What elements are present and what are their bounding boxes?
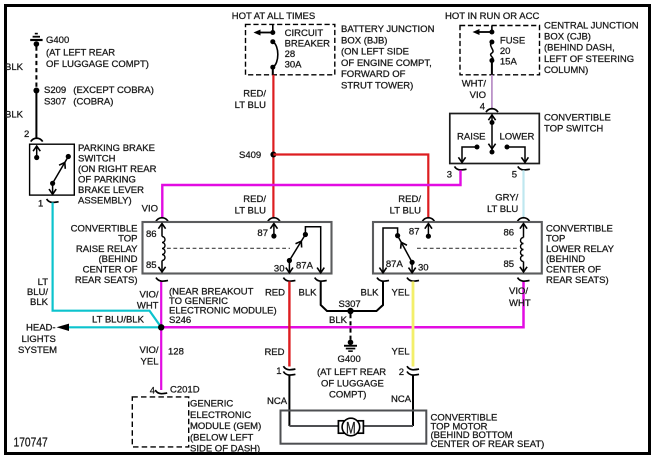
svg-text:(ON LEFT SIDE: (ON LEFT SIDE xyxy=(341,47,409,58)
svg-text:M: M xyxy=(346,418,356,436)
svg-text:86: 86 xyxy=(146,229,157,240)
svg-text:NCA: NCA xyxy=(391,394,412,405)
svg-text:HOT AT ALL TIMES: HOT AT ALL TIMES xyxy=(232,11,315,22)
svg-text:SYSTEM: SYSTEM xyxy=(18,345,57,356)
svg-text:BLK: BLK xyxy=(5,62,24,73)
svg-text:BLK: BLK xyxy=(299,288,318,299)
svg-text:REAR SEATS): REAR SEATS) xyxy=(546,275,609,286)
svg-text:VIO: VIO xyxy=(142,204,158,215)
svg-text:30: 30 xyxy=(274,263,285,274)
svg-text:RAISE: RAISE xyxy=(457,132,486,143)
svg-text:FUSE: FUSE xyxy=(500,36,525,47)
svg-text:C201D: C201D xyxy=(170,385,200,396)
svg-text:YEL: YEL xyxy=(392,347,410,358)
svg-text:RED/: RED/ xyxy=(398,194,421,205)
svg-text:128: 128 xyxy=(168,347,184,358)
svg-text:COLUMN): COLUMN) xyxy=(544,65,588,76)
svg-text:WHT: WHT xyxy=(137,301,159,312)
svg-text:YEL: YEL xyxy=(141,356,159,367)
svg-text:85: 85 xyxy=(146,260,157,271)
svg-text:CONVERTIBLE: CONVERTIBLE xyxy=(544,113,611,124)
svg-text:15A: 15A xyxy=(500,57,518,68)
svg-text:OF PARKING: OF PARKING xyxy=(78,175,136,186)
svg-text:S209: S209 xyxy=(44,85,66,96)
svg-text:S246: S246 xyxy=(169,315,191,326)
svg-text:(AT LEFT REAR: (AT LEFT REAR xyxy=(317,367,386,378)
svg-text:4: 4 xyxy=(150,386,155,397)
svg-text:RED: RED xyxy=(265,288,285,299)
svg-text:(COBRA): (COBRA) xyxy=(73,96,113,107)
svg-text:HEAD-: HEAD- xyxy=(26,323,56,334)
svg-text:(ON RIGHT REAR: (ON RIGHT REAR xyxy=(78,164,157,175)
svg-text:BLK: BLK xyxy=(30,297,49,308)
svg-text:(AT LEFT REAR: (AT LEFT REAR xyxy=(46,48,115,59)
svg-text:LOWER: LOWER xyxy=(500,132,535,143)
svg-text:REAR SEATS): REAR SEATS) xyxy=(75,275,138,286)
svg-text:HOT IN RUN OR ACC: HOT IN RUN OR ACC xyxy=(445,11,539,22)
svg-text:WHT: WHT xyxy=(509,298,531,309)
svg-text:G400: G400 xyxy=(338,354,361,365)
svg-text:(BELOW LEFT: (BELOW LEFT xyxy=(190,432,254,443)
svg-text:28: 28 xyxy=(285,49,296,60)
svg-text:TOP SWITCH: TOP SWITCH xyxy=(544,124,603,135)
svg-text:30A: 30A xyxy=(285,59,303,70)
svg-text:G400: G400 xyxy=(46,35,69,46)
svg-text:CIRCUIT: CIRCUIT xyxy=(285,28,324,39)
svg-text:CENTER OF REAR SEAT): CENTER OF REAR SEAT) xyxy=(431,439,545,450)
svg-text:30: 30 xyxy=(418,263,429,274)
svg-text:LT BLU: LT BLU xyxy=(235,206,266,217)
svg-text:RED/: RED/ xyxy=(243,194,266,205)
svg-text:5: 5 xyxy=(512,170,517,181)
svg-text:BOX (BJB): BOX (BJB) xyxy=(341,35,387,46)
svg-text:VIO/: VIO/ xyxy=(139,290,158,301)
svg-text:LT BLU/BLK: LT BLU/BLK xyxy=(92,315,145,326)
svg-text:LT BLU: LT BLU xyxy=(390,206,421,217)
svg-text:CENTRAL JUNCTION: CENTRAL JUNCTION xyxy=(544,20,639,31)
svg-text:RED/: RED/ xyxy=(243,89,266,100)
svg-text:RED: RED xyxy=(264,347,284,358)
svg-text:WHT/: WHT/ xyxy=(462,79,487,90)
svg-text:BLK: BLK xyxy=(361,288,380,299)
svg-text:GENERIC: GENERIC xyxy=(190,399,233,410)
svg-text:BLK: BLK xyxy=(5,110,24,121)
svg-text:(BEHIND DASH,: (BEHIND DASH, xyxy=(544,43,615,54)
svg-text:NCA: NCA xyxy=(267,396,288,407)
svg-text:1: 1 xyxy=(38,199,43,210)
svg-text:BLK: BLK xyxy=(329,315,348,326)
svg-text:SWITCH: SWITCH xyxy=(78,154,116,165)
svg-text:4: 4 xyxy=(480,102,485,113)
svg-text:LT BLU: LT BLU xyxy=(487,204,518,215)
svg-text:FORWARD OF: FORWARD OF xyxy=(341,69,406,80)
svg-text:BRAKE LEVER: BRAKE LEVER xyxy=(78,185,144,196)
svg-text:YEL: YEL xyxy=(392,288,410,299)
svg-text:85: 85 xyxy=(504,259,515,270)
svg-text:SIDE OF DASH): SIDE OF DASH) xyxy=(190,443,260,454)
svg-text:ASSEMBLY): ASSEMBLY) xyxy=(78,196,132,207)
svg-text:LEFT OF STEERING: LEFT OF STEERING xyxy=(544,54,634,65)
svg-text:87: 87 xyxy=(257,228,268,239)
svg-text:VIO/: VIO/ xyxy=(509,286,528,297)
svg-text:(EXCEPT COBRA): (EXCEPT COBRA) xyxy=(73,85,154,96)
svg-text:BATTERY JUNCTION: BATTERY JUNCTION xyxy=(341,24,435,35)
svg-text:OF ENGINE COMPT,: OF ENGINE COMPT, xyxy=(341,58,432,69)
svg-text:LT BLU: LT BLU xyxy=(235,100,266,111)
svg-text:VIO/: VIO/ xyxy=(139,345,158,356)
svg-text:170747: 170747 xyxy=(14,437,48,450)
svg-text:VIO: VIO xyxy=(470,90,486,101)
svg-text:OF LUGGAGE COMPT): OF LUGGAGE COMPT) xyxy=(46,59,149,70)
svg-text:S409: S409 xyxy=(239,150,261,161)
svg-text:BREAKER: BREAKER xyxy=(285,38,331,49)
svg-text:STRUT TOWER): STRUT TOWER) xyxy=(341,81,413,92)
svg-text:MODULE (GEM): MODULE (GEM) xyxy=(190,421,261,432)
svg-text:COMPT): COMPT) xyxy=(329,390,366,401)
svg-text:87A: 87A xyxy=(296,260,314,271)
svg-text:20: 20 xyxy=(500,46,511,57)
svg-text:86: 86 xyxy=(504,228,515,239)
svg-text:GRY/: GRY/ xyxy=(495,193,518,204)
svg-text:87A: 87A xyxy=(386,259,404,270)
svg-text:2: 2 xyxy=(24,129,29,140)
svg-text:OF LUGGAGE: OF LUGGAGE xyxy=(321,378,384,389)
svg-text:3: 3 xyxy=(447,170,452,181)
svg-text:ELECTRONIC: ELECTRONIC xyxy=(190,410,251,421)
svg-text:LIGHTS: LIGHTS xyxy=(22,334,56,345)
svg-text:2: 2 xyxy=(399,367,404,378)
svg-text:PARKING BRAKE: PARKING BRAKE xyxy=(78,143,155,154)
svg-text:1: 1 xyxy=(276,366,281,377)
svg-text:87: 87 xyxy=(409,227,420,238)
svg-text:S307: S307 xyxy=(44,96,66,107)
svg-text:BOX (CJB): BOX (CJB) xyxy=(544,32,591,43)
